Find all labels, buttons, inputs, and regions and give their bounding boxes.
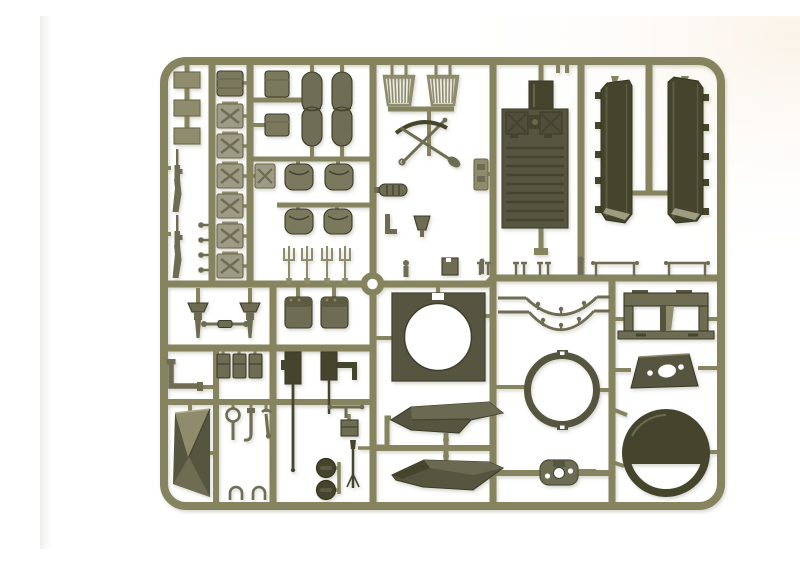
letter-plate — [474, 159, 488, 190]
stowage-pack — [321, 297, 348, 328]
sprue-photo — [40, 16, 800, 549]
deck-intake-box — [529, 81, 553, 110]
fender — [668, 76, 709, 223]
stowage-pack — [285, 297, 312, 328]
jerry-can — [217, 222, 243, 249]
jerry-can — [217, 252, 243, 279]
stowage-pack-column — [217, 71, 243, 96]
stowage-pack — [217, 71, 243, 96]
turret-plate — [392, 293, 485, 381]
small-plate — [174, 100, 200, 116]
small-plate — [174, 128, 200, 144]
small-box-fitting — [442, 258, 458, 275]
jerry-can — [217, 102, 243, 129]
deck-hatch — [540, 112, 562, 134]
stowage-bag — [325, 164, 353, 190]
letter-plate-mark — [477, 164, 485, 170]
periscope-bracket — [618, 290, 714, 339]
stowage-pack — [265, 114, 289, 136]
center-ring — [364, 276, 381, 293]
small-plate — [174, 72, 200, 88]
ammo-boxes — [217, 354, 262, 378]
jerry-can — [255, 164, 275, 188]
sprue-illustration — [40, 16, 800, 549]
road-wheel — [317, 481, 336, 500]
small-plates — [174, 72, 200, 144]
stowage-bag — [285, 164, 313, 190]
stowage-pack — [265, 71, 289, 97]
jerry-can — [217, 132, 243, 159]
deck-gate-foot — [534, 248, 548, 255]
ammo-box — [341, 420, 358, 436]
mount-post — [578, 257, 584, 276]
plate-notch — [432, 293, 444, 300]
figure-fitting — [403, 260, 409, 277]
tarpaulin — [173, 409, 210, 497]
duffel-bag — [302, 72, 322, 146]
fender — [595, 76, 632, 223]
jerry-can — [217, 192, 243, 219]
stowage-bag — [285, 209, 313, 234]
duffel-bag — [332, 72, 352, 146]
glacis-plate — [631, 354, 698, 388]
base-plate — [540, 460, 578, 485]
deck-hatch — [506, 112, 528, 134]
road-wheel — [317, 459, 336, 478]
letter-plate-mark — [477, 176, 485, 182]
ammo-box — [233, 354, 246, 378]
ammo-box — [249, 354, 262, 378]
jerry-can — [217, 162, 243, 189]
ammo-box — [217, 354, 230, 378]
stowage-bag — [324, 209, 352, 234]
